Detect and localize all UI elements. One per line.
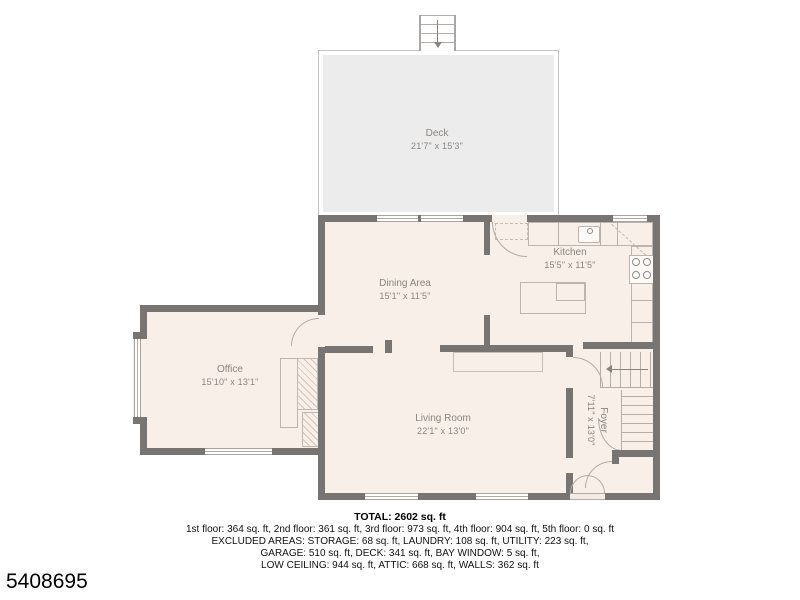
excluded-areas-3: LOW CEILING: 944 sq. ft, ATTIC: 668 sq. … [0, 560, 800, 572]
down-arrow-icon [434, 42, 442, 48]
front-door-opening [570, 493, 605, 500]
kitchen-island-inner [556, 283, 585, 301]
room-dims: 22'1" x 13'0" [343, 425, 543, 438]
room-label-kitchen: Kitchen 15'5" x 11'5" [490, 246, 650, 272]
foyer-stairs-lower [621, 390, 653, 450]
window [476, 493, 528, 500]
room-dims: 15'10" x 13'1" [130, 376, 330, 389]
room-name: Kitchen [490, 246, 650, 259]
window [205, 448, 272, 455]
deck-stairs-arrow-stem [437, 20, 438, 42]
counter-divider [558, 222, 559, 246]
wall-bay-stub-upper [133, 332, 147, 339]
wall-closet-top [612, 450, 660, 457]
wall-living-foyer-upper [566, 345, 573, 357]
wall-living-foyer-mid [566, 388, 573, 458]
room-name: Deck [337, 127, 537, 140]
wall-closet-left [612, 450, 619, 464]
wall-stub [385, 340, 392, 353]
room-label-deck: Deck 21'7" x 15'3" [337, 127, 537, 153]
excluded-areas-1: EXCLUDED AREAS: STORAGE: 68 sq. ft, LAUN… [0, 536, 800, 548]
wall-bay-stub-lower [133, 417, 147, 424]
room-name: Dining Area [305, 277, 505, 290]
wall-dining-living-left [325, 346, 373, 353]
room-name: Foyer [597, 375, 610, 465]
counter-divider [617, 222, 618, 246]
wall-kitchen-foyer [583, 342, 660, 349]
floors-areas: 1st floor: 364 sq. ft, 2nd floor: 361 sq… [0, 524, 800, 536]
room-dims: 21'7" x 15'3" [337, 140, 537, 153]
stairs-arrow-stem [612, 369, 648, 370]
sink-faucet [587, 228, 593, 234]
wall-office-top [140, 305, 325, 312]
counter-divider [600, 222, 601, 246]
room-dims: 7'11" x 13'0" [584, 375, 597, 465]
window [613, 215, 647, 222]
area-summary: TOTAL: 2602 sq. ft 1st floor: 364 sq. ft… [0, 511, 800, 572]
counter-divider [631, 300, 653, 301]
room-dims: 15'5" x 11'5" [490, 259, 650, 272]
counter-divider [631, 322, 653, 323]
room-dims: 15'1" x 11'5" [305, 290, 505, 303]
wall-kitchen-living [440, 345, 573, 352]
living-room-builtin [453, 352, 543, 372]
total-area: TOTAL: 2602 sq. ft [0, 511, 800, 524]
window [365, 493, 418, 500]
wall-top [318, 215, 660, 222]
door-opening-kitchen [492, 215, 527, 222]
window [421, 215, 463, 222]
room-label-foyer: Foyer 7'11" x 13'0" [584, 375, 610, 465]
wall-right [653, 215, 660, 500]
stairs-hatch-lower [302, 412, 319, 447]
room-label-dining: Dining Area 15'1" x 11'5" [305, 277, 505, 303]
room-name: Office [130, 363, 330, 376]
room-name: Living Room [343, 412, 543, 425]
window [377, 215, 418, 222]
wall-office-left-upper [140, 305, 147, 333]
listing-id: 5408695 [6, 570, 88, 594]
stove-burner [632, 271, 640, 279]
excluded-areas-2: GARAGE: 510 sq. ft, DECK: 341 sq. ft, BA… [0, 548, 800, 560]
stove-burner [643, 271, 651, 279]
room-label-office: Office 15'10" x 13'1" [130, 363, 330, 389]
floor-plan: Deck 21'7" x 15'3" Dining Area 15'1" x 1… [0, 0, 800, 600]
room-label-living: Living Room 22'1" x 13'0" [343, 412, 543, 438]
left-arrow-icon [606, 365, 612, 373]
